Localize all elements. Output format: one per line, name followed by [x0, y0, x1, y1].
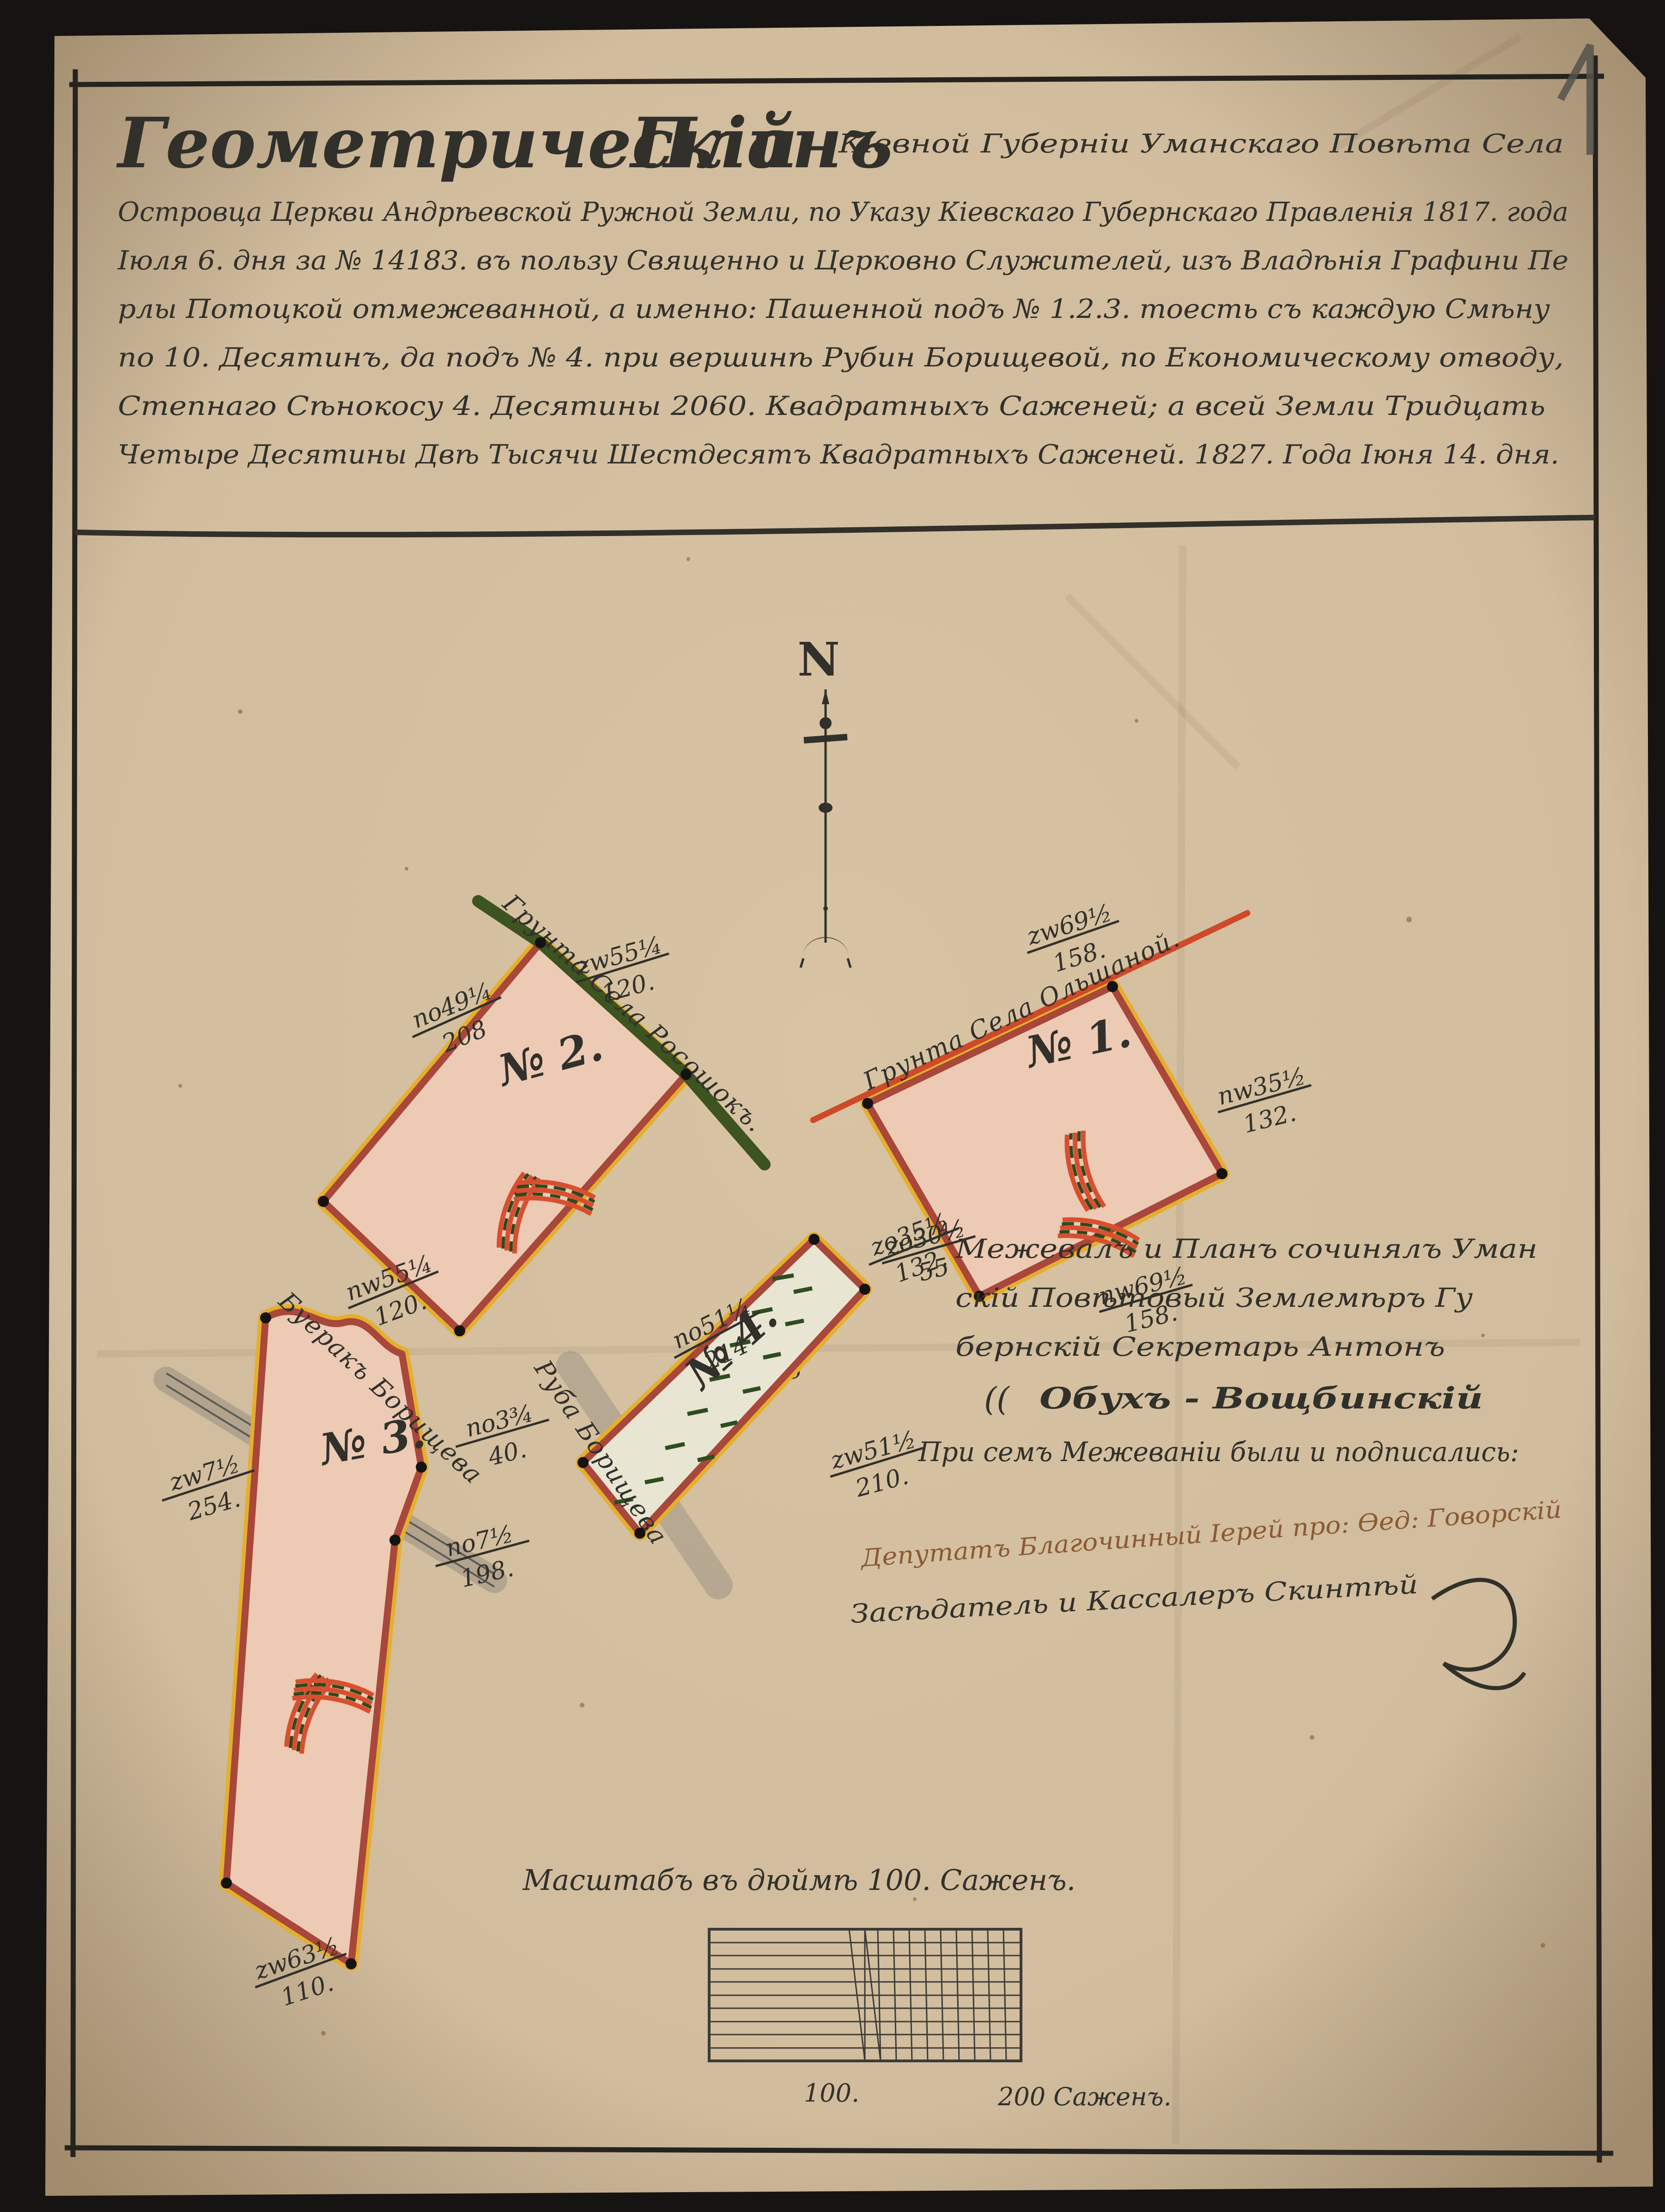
north-crossbar [804, 737, 847, 740]
witness-intro-line: При семъ Межеваніи были и подписались: [918, 1436, 1519, 1468]
surveyor-line-3: бернскій Секретарь Антонъ [955, 1332, 1445, 1362]
north-bead [820, 717, 832, 729]
frame-left [73, 69, 75, 2157]
geometric-plan-scan: Геометрическій Планъ Кіевной Губерніи Ум… [0, 0, 1665, 2212]
header-line-6: Степнаго Сѣнокосу 4. Десятины 2060. Квад… [118, 391, 1545, 421]
surveyor-line-1: Межевалъ и Планъ сочинялъ Уман [955, 1234, 1537, 1264]
header-line-3: Іюля 6. дня за № 14183. въ пользу Священ… [117, 245, 1568, 276]
surveyor-signature: Обухъ - Вощбинскій [1039, 1381, 1483, 1416]
header-line-7: Четыре Десятины Двѣ Тысячи Шестдесятъ Кв… [118, 439, 1559, 470]
header-line-4: рлы Потоцкой отмежеванной, а именно: Паш… [118, 294, 1550, 324]
title-line1-rest: Кіевной Губерніи Уманскаго Повѣта Села [838, 129, 1564, 159]
north-dot [823, 906, 828, 911]
north-label: N [797, 632, 839, 687]
surveyor-flourish: (( [984, 1380, 1010, 1418]
scale-mid-label: 100. [804, 2078, 859, 2108]
surveyor-line-2: скій Повѣтовый Землемѣръ Гу [955, 1283, 1473, 1313]
scale-end-label: 200 Саженъ. [997, 2082, 1172, 2111]
north-node [819, 803, 832, 813]
header-line-5: по 10. Десятинъ, да подъ № 4. при вершин… [118, 342, 1564, 373]
scale-caption: Масштабъ въ дюймѣ 100. Саженъ. [523, 1863, 1076, 1897]
header-line-2: Островца Церкви Андрѣевской Ружной Земли… [118, 197, 1568, 227]
